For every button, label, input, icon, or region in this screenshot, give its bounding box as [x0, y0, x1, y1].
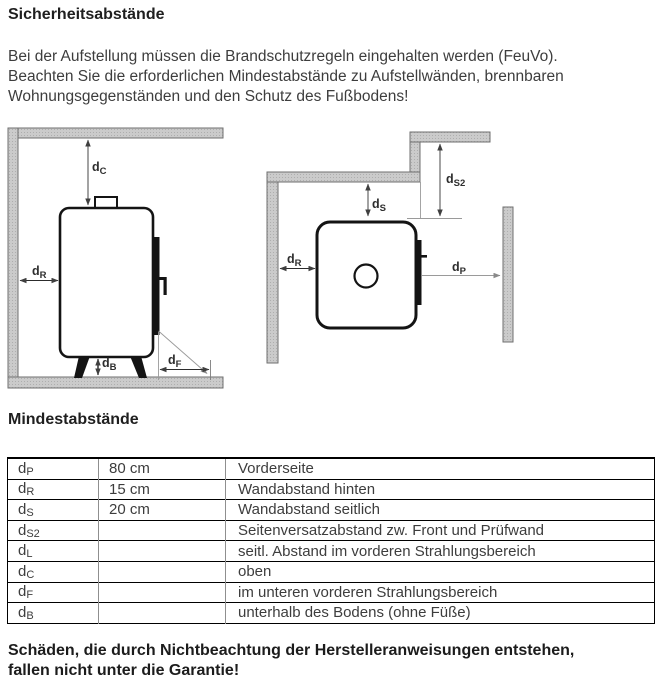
rear-wall: [267, 182, 278, 363]
intro-paragraph: Bei der Aufstellung müssen die Brandschu…: [8, 47, 564, 107]
floor: [8, 377, 223, 388]
distance-value: [99, 520, 226, 541]
label-df: dF: [168, 353, 181, 370]
flue-outlet: [355, 265, 378, 288]
offset-wall: [410, 132, 490, 142]
distance-description: Wandabstand seitlich: [226, 500, 655, 521]
stove-leg: [74, 356, 90, 378]
top-view-diagram: [267, 132, 513, 363]
table-row: dS2 Seitenversatzabstand zw. Front und P…: [8, 520, 655, 541]
door-handle-top: [421, 255, 427, 258]
intro-line: Bei der Aufstellung müssen die Brandschu…: [8, 47, 564, 67]
distance-description: seitl. Abstand im vorderen Strahlungsber…: [226, 541, 655, 562]
table-row: dC oben: [8, 561, 655, 582]
table-row: dS 20 cm Wandabstand seitlich: [8, 500, 655, 521]
distance-symbol: dF: [8, 582, 99, 603]
label-dc: dC: [92, 160, 107, 177]
distance-value: [99, 603, 226, 624]
offset-wall-return: [410, 142, 420, 172]
distance-description: im unteren vorderen Strahlungsbereich: [226, 582, 655, 603]
intro-line: Beachten Sie die erforderlichen Mindesta…: [8, 67, 564, 87]
warning-line: Schäden, die durch Nichtbeachtung der He…: [8, 641, 574, 661]
min-distances-table: dP 80 cm Vorderseite dR 15 cm Wandabstan…: [7, 457, 655, 624]
table-row: dR 15 cm Wandabstand hinten: [8, 479, 655, 500]
distance-value: [99, 582, 226, 603]
rear-wall: [8, 128, 18, 388]
stove-body: [60, 208, 153, 357]
distance-description: Seitenversatzabstand zw. Front und Prüfw…: [226, 520, 655, 541]
ceiling: [8, 128, 223, 138]
distance-value: 20 cm: [99, 500, 226, 521]
distance-symbol: dS2: [8, 520, 99, 541]
side-view-diagram: [8, 128, 223, 388]
table-row: dP 80 cm Vorderseite: [8, 458, 655, 479]
distance-symbol: dL: [8, 541, 99, 562]
table-row: dB unterhalb des Bodens (ohne Füße): [8, 603, 655, 624]
distance-description: unterhalb des Bodens (ohne Füße): [226, 603, 655, 624]
distance-value: 80 cm: [99, 458, 226, 479]
label-dr-side: dR: [32, 264, 47, 281]
page-title: Sicherheitsabstände: [8, 6, 165, 24]
stove-door: [152, 237, 160, 335]
distance-value: [99, 561, 226, 582]
distance-symbol: dR: [8, 479, 99, 500]
label-dp: dP: [452, 260, 466, 277]
radiation-diagonal-line: [159, 331, 208, 374]
stove-leg: [130, 356, 147, 378]
intro-line: Wohnungsgegenständen und den Schutz des …: [8, 87, 564, 107]
label-dr-top: dR: [287, 252, 302, 269]
door-handle: [164, 277, 167, 295]
stove-door-top: [415, 240, 422, 305]
side-wall: [267, 172, 420, 182]
distance-description: Vorderseite: [226, 458, 655, 479]
distance-value: 15 cm: [99, 479, 226, 500]
stove-flue-collar: [95, 197, 117, 208]
warning-line: fallen nicht unter die Garantie!: [8, 661, 574, 681]
distance-symbol: dC: [8, 561, 99, 582]
label-db: dB: [102, 356, 117, 373]
table-heading: Mindestabstände: [8, 411, 139, 429]
label-ds2: dS2: [446, 172, 465, 189]
table-row: dF im unteren vorderen Strahlungsbereich: [8, 582, 655, 603]
distance-value: [99, 541, 226, 562]
table-row: dL seitl. Abstand im vorderen Strahlungs…: [8, 541, 655, 562]
safety-distance-diagrams: dC dR dB dF dS dS2 dR dP: [0, 120, 669, 405]
distance-symbol: dS: [8, 500, 99, 521]
distance-symbol: dB: [8, 603, 99, 624]
warranty-warning: Schäden, die durch Nichtbeachtung der He…: [8, 641, 574, 681]
test-wall: [503, 207, 513, 342]
distance-symbol: dP: [8, 458, 99, 479]
distance-description: oben: [226, 561, 655, 582]
label-ds: dS: [372, 197, 386, 214]
distance-description: Wandabstand hinten: [226, 479, 655, 500]
